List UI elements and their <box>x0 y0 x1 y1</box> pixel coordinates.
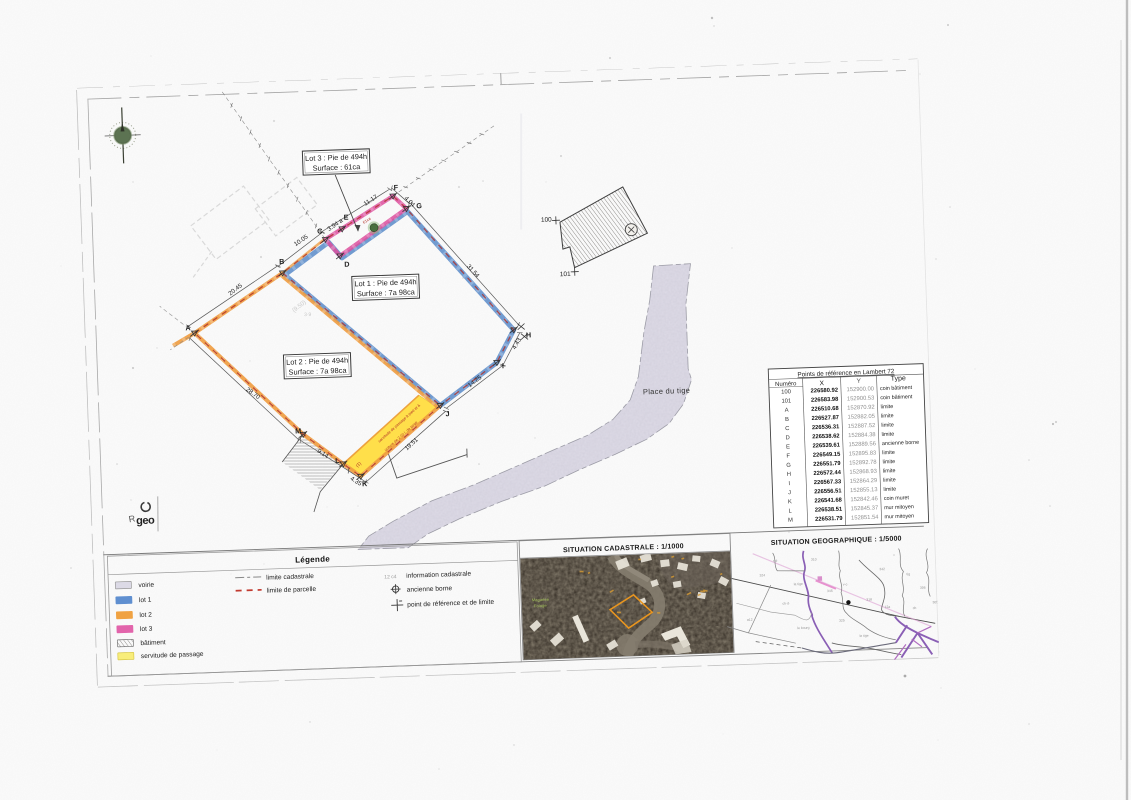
svg-text:I: I <box>502 361 504 370</box>
svg-text:limite: limite <box>881 432 894 438</box>
svg-text:le bourg: le bourg <box>797 626 809 630</box>
svg-text:coin bâtiment: coin bâtiment <box>880 385 913 392</box>
svg-text:point de référence et de limit: point de référence et de limite <box>407 599 494 609</box>
svg-text:152845.37: 152845.37 <box>851 505 879 512</box>
svg-text:voirie: voirie <box>138 582 154 590</box>
svg-text:a12: a12 <box>747 618 753 622</box>
svg-text:v·c·: v·c· <box>843 582 849 586</box>
svg-text:152870.92: 152870.92 <box>847 405 875 412</box>
svg-text:servitude de passage: servitude de passage <box>141 651 204 660</box>
svg-text:152900.00: 152900.00 <box>847 386 875 393</box>
svg-text:A: A <box>785 408 789 414</box>
svg-text:le tige: le tige <box>860 634 869 638</box>
svg-text:limite: limite <box>882 459 895 465</box>
svg-text:M: M <box>788 518 793 524</box>
svg-text:coin bâtiment: coin bâtiment <box>880 394 913 401</box>
svg-text:100: 100 <box>781 389 791 395</box>
svg-text:la tige: la tige <box>794 582 803 586</box>
svg-text:limite: limite <box>883 468 896 474</box>
svg-text:G: G <box>786 463 791 469</box>
svg-text:226556.51: 226556.51 <box>814 488 842 495</box>
svg-text:mur mitoyen: mur mitoyen <box>884 513 914 520</box>
svg-text:4.43: 4.43 <box>511 336 523 350</box>
svg-text:226538.62: 226538.62 <box>812 433 840 440</box>
svg-text:152889.56: 152889.56 <box>848 441 876 448</box>
svg-text:lot 2: lot 2 <box>139 612 152 619</box>
svg-text:Légende: Légende <box>295 554 331 564</box>
svg-text:226539.61: 226539.61 <box>812 443 840 450</box>
svg-text:H: H <box>787 472 791 478</box>
svg-text:226551.79: 226551.79 <box>813 461 841 468</box>
svg-text:152895.83: 152895.83 <box>849 450 877 457</box>
svg-text:mur mitoyen: mur mitoyen <box>884 504 914 511</box>
svg-text:tig: tig <box>906 572 910 576</box>
svg-text:B: B <box>785 417 789 423</box>
svg-text:C: C <box>317 226 323 235</box>
svg-text:226549.15: 226549.15 <box>813 452 841 459</box>
svg-text:226510.68: 226510.68 <box>811 406 839 413</box>
svg-text:101: 101 <box>781 398 791 404</box>
svg-text:geo: geo <box>136 515 155 528</box>
svg-text:lot 3: lot 3 <box>140 626 153 633</box>
svg-text:152855.13: 152855.13 <box>850 487 878 494</box>
svg-text:r·d·: r·d· <box>773 559 778 563</box>
svg-text:limite: limite <box>881 413 894 419</box>
svg-text:E: E <box>786 444 790 450</box>
svg-text:152892.78: 152892.78 <box>849 460 877 467</box>
svg-text:limite: limite <box>882 450 895 456</box>
svg-text:ancienne borne: ancienne borne <box>882 440 919 447</box>
svg-text:Surface : 61ca: Surface : 61ca <box>312 162 361 173</box>
svg-text:H: H <box>526 330 532 339</box>
svg-text:306: 306 <box>920 586 926 590</box>
svg-text:152842.46: 152842.46 <box>850 496 878 503</box>
svg-text:152864.29: 152864.29 <box>850 478 878 485</box>
svg-text:226531.79: 226531.79 <box>815 516 843 523</box>
svg-text:B: B <box>279 257 285 266</box>
svg-text:limite: limite <box>883 477 896 483</box>
svg-text:coin muret: coin muret <box>884 495 910 502</box>
svg-text:limite cadastrale: limite cadastrale <box>266 573 314 582</box>
svg-text:F: F <box>786 453 790 459</box>
svg-text:226527.87: 226527.87 <box>811 415 839 422</box>
svg-text:152887.52: 152887.52 <box>848 423 876 430</box>
svg-text:Y: Y <box>856 378 861 385</box>
svg-text:226572.44: 226572.44 <box>813 470 841 477</box>
svg-text:J: J <box>788 490 791 496</box>
svg-text:101: 101 <box>560 271 571 278</box>
svg-text:K: K <box>362 479 368 488</box>
svg-text:226567.33: 226567.33 <box>814 479 842 486</box>
svg-text:324: 324 <box>759 573 765 577</box>
svg-text:Magaéeé: Magaéeé <box>532 597 550 603</box>
svg-text:lot 1: lot 1 <box>139 597 152 604</box>
svg-text:L: L <box>335 456 340 465</box>
svg-text:12a: 12a <box>885 605 891 609</box>
svg-text:limite: limite <box>883 487 896 493</box>
svg-text:325: 325 <box>839 618 845 622</box>
svg-text:M: M <box>295 426 301 435</box>
svg-text:bâtiment: bâtiment <box>140 639 166 647</box>
svg-text:ch·: ch· <box>913 606 918 610</box>
svg-text:342: 342 <box>879 567 885 571</box>
svg-text:Fologe: Fologe <box>534 603 548 608</box>
svg-text:limite: limite <box>881 404 894 410</box>
svg-text:226541.68: 226541.68 <box>814 497 842 504</box>
svg-text:X: X <box>819 380 824 387</box>
svg-text:152900.53: 152900.53 <box>847 396 875 403</box>
svg-text:E: E <box>344 213 349 222</box>
svg-text:226536.31: 226536.31 <box>812 424 840 431</box>
svg-text:D: D <box>344 260 350 269</box>
svg-text:limite: limite <box>881 422 894 428</box>
svg-text:C: C <box>785 426 789 432</box>
svg-text:310: 310 <box>811 557 817 561</box>
svg-text:Type: Type <box>891 375 907 383</box>
svg-text:10.05: 10.05 <box>293 233 310 248</box>
svg-text:G: G <box>416 201 422 210</box>
svg-text:152868.93: 152868.93 <box>849 469 877 476</box>
svg-text:K: K <box>788 499 792 505</box>
svg-text:226583.98: 226583.98 <box>811 397 839 404</box>
svg-text:305: 305 <box>932 600 938 604</box>
svg-text:3·9: 3·9 <box>304 312 312 318</box>
svg-text:226538.51: 226538.51 <box>815 507 843 514</box>
svg-text:information cadastrale: information cadastrale <box>406 570 471 579</box>
svg-text:152884.38: 152884.38 <box>848 432 876 439</box>
svg-text:Place du tige: Place du tige <box>643 386 691 397</box>
svg-text:F: F <box>394 183 399 192</box>
svg-text:A: A <box>185 323 191 332</box>
svg-text:D: D <box>785 435 789 441</box>
svg-text:ancienne borne: ancienne borne <box>407 585 453 594</box>
svg-text:J: J <box>445 409 449 418</box>
svg-text:SITUATION GEOGRAPHIQUE : 1/500: SITUATION GEOGRAPHIQUE : 1/5000 <box>771 535 902 547</box>
svg-text:28.70: 28.70 <box>244 386 261 401</box>
svg-text:100: 100 <box>541 216 552 223</box>
svg-text:152851.54: 152851.54 <box>851 515 879 522</box>
svg-text:152882.05: 152882.05 <box>847 414 875 421</box>
svg-text:318: 318 <box>866 598 872 602</box>
svg-text:limite de parcelle: limite de parcelle <box>267 586 317 595</box>
svg-text:SITUATION CADASTRALE : 1/1000: SITUATION CADASTRALE : 1/1000 <box>563 543 684 554</box>
svg-text:20.45: 20.45 <box>227 282 244 297</box>
svg-text:226580.92: 226580.92 <box>811 388 839 395</box>
svg-text:12 c4: 12 c4 <box>384 574 397 580</box>
svg-text:345: 345 <box>827 589 833 593</box>
svg-text:ch·d·: ch·d· <box>782 601 790 605</box>
